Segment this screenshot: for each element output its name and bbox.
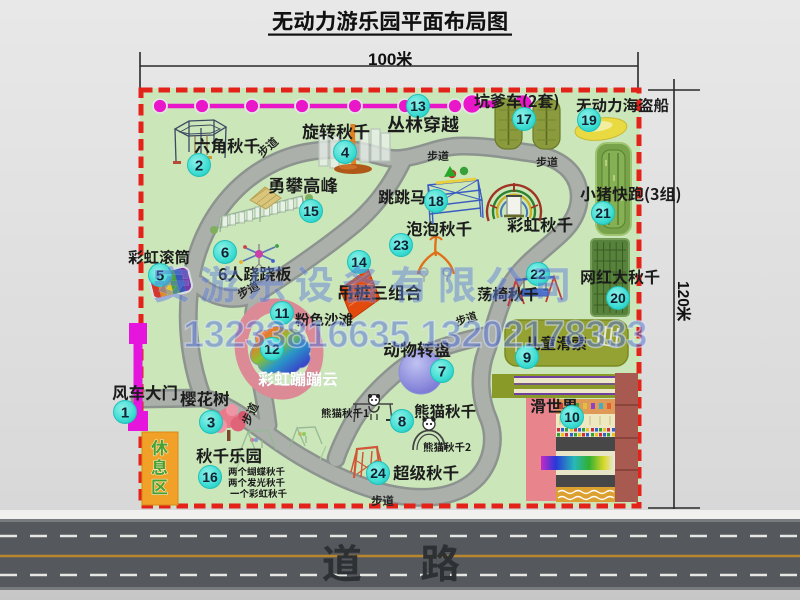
svg-text:100: 100 — [368, 50, 396, 69]
svg-text:19: 19 — [581, 112, 597, 128]
svg-text:1: 1 — [121, 404, 129, 421]
svg-text:8: 8 — [398, 413, 406, 430]
svg-text:7: 7 — [438, 363, 446, 380]
svg-text:20: 20 — [610, 290, 626, 306]
svg-text:120: 120 — [674, 281, 691, 307]
svg-text:24: 24 — [370, 465, 386, 481]
svg-text:2: 2 — [195, 157, 203, 174]
svg-text:17: 17 — [516, 111, 532, 127]
svg-text:18: 18 — [428, 193, 444, 209]
svg-text:10: 10 — [564, 409, 580, 425]
svg-text:13233816635 13202178333: 13233816635 13202178333 — [183, 314, 647, 356]
svg-text:23: 23 — [393, 237, 409, 253]
svg-text:15: 15 — [303, 203, 319, 219]
svg-text:4: 4 — [341, 144, 350, 161]
svg-text:13: 13 — [410, 98, 426, 114]
svg-text:6: 6 — [221, 244, 229, 261]
svg-text:21: 21 — [595, 205, 611, 221]
svg-text:3: 3 — [207, 414, 215, 431]
svg-text:16: 16 — [202, 469, 218, 485]
